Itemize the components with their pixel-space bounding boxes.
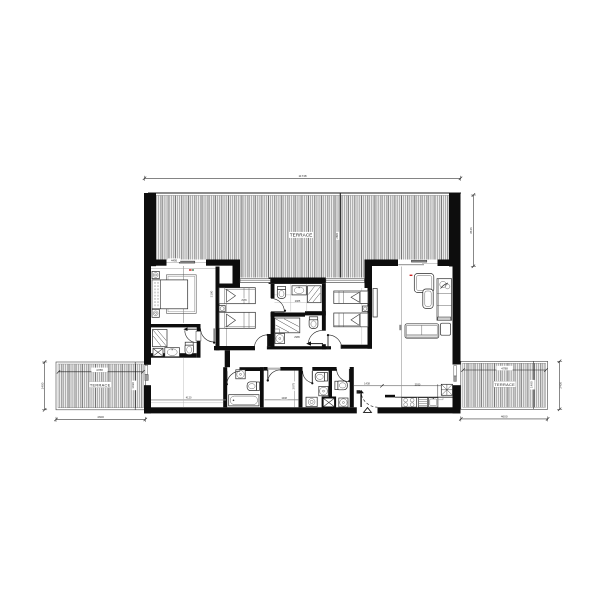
svg-text:2400: 2400 <box>40 382 44 389</box>
svg-text:1490: 1490 <box>131 382 135 389</box>
svg-text:4788: 4788 <box>501 366 508 370</box>
svg-text:4495: 4495 <box>171 258 177 262</box>
svg-text:1438: 1438 <box>364 382 370 386</box>
svg-text:4600: 4600 <box>501 415 508 419</box>
svg-text:4120: 4120 <box>186 396 192 400</box>
svg-text:2075: 2075 <box>292 382 296 389</box>
svg-text:1490: 1490 <box>529 381 533 388</box>
svg-text:2680: 2680 <box>335 232 339 238</box>
svg-text:TERRACE: TERRACE <box>90 382 111 387</box>
svg-text:2985: 2985 <box>241 299 247 302</box>
svg-text:4600: 4600 <box>97 415 104 419</box>
svg-text:3190: 3190 <box>210 290 214 297</box>
svg-text:2400: 2400 <box>559 382 563 389</box>
svg-text:3546: 3546 <box>469 227 473 234</box>
svg-text:2985: 2985 <box>294 336 300 339</box>
svg-text:TERRACE: TERRACE <box>290 233 313 238</box>
svg-text:3930: 3930 <box>415 383 421 387</box>
svg-text:11738: 11738 <box>298 174 306 178</box>
svg-text:4788: 4788 <box>96 368 103 372</box>
svg-text:2985: 2985 <box>295 300 301 303</box>
svg-text:TERRACE: TERRACE <box>494 382 515 387</box>
svg-text:1008: 1008 <box>281 397 287 400</box>
